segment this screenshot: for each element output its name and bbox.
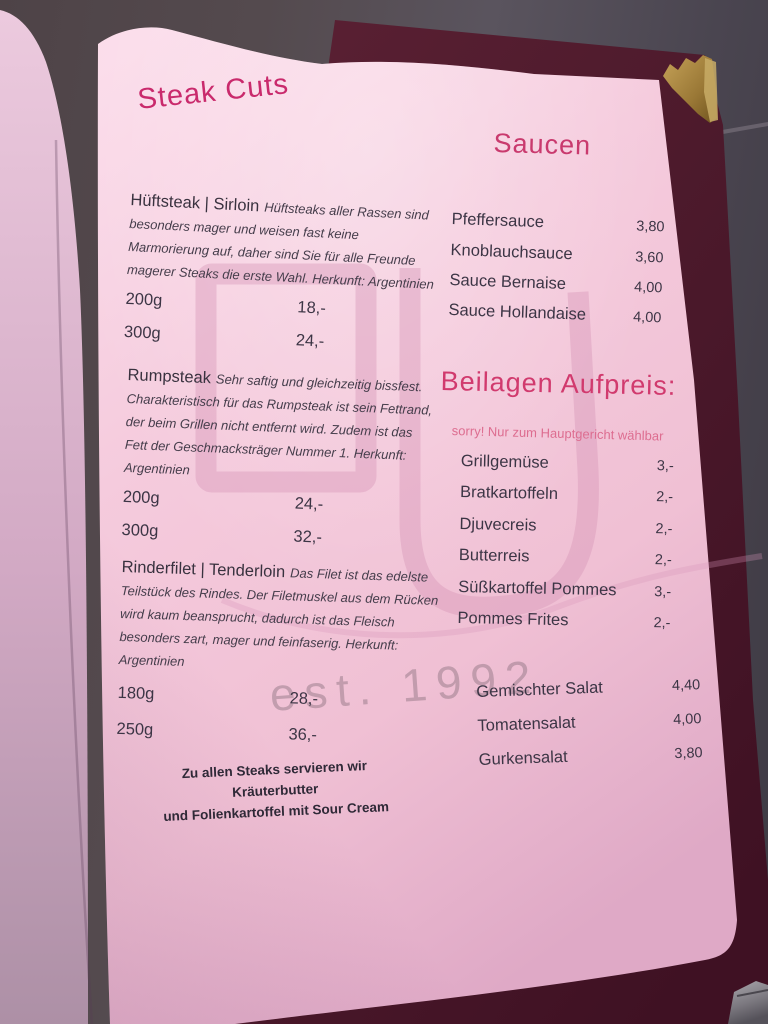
- item-price: 2,-: [656, 487, 673, 506]
- beilagen-title: Beilagen Aufpreis:: [440, 366, 676, 402]
- item-size: 250g: [116, 720, 153, 739]
- item-price: 24,-: [294, 495, 323, 515]
- item-size: 300g: [124, 323, 162, 343]
- item-size: 300g: [121, 521, 158, 540]
- section-name: Hüftsteak | Sirloin: [130, 191, 260, 215]
- item-price: 2,-: [655, 519, 672, 538]
- item-price: 36,-: [288, 725, 317, 745]
- item-name: Pommes Frites: [457, 609, 568, 630]
- item-price: 24,-: [295, 331, 324, 351]
- item-price: 3,-: [657, 456, 674, 475]
- item-name: Sauce Bernaise: [449, 271, 566, 294]
- item-price: 4,00: [634, 277, 663, 297]
- item-price: 18,-: [297, 298, 326, 318]
- left-page-stack: [0, 10, 88, 1024]
- item-price: 4,00: [673, 709, 702, 729]
- item-name: Butterreis: [459, 546, 530, 566]
- menu-section-rumpsteak: RumpsteakSehr saftig und gleichzeitig bi…: [121, 364, 440, 566]
- item-name: Süßkartoffel Pommes: [458, 578, 617, 600]
- item-price: 2,-: [653, 613, 670, 632]
- item-name: Bratkartoffeln: [460, 483, 558, 504]
- section-name: Rinderfilet | Tenderloin: [121, 558, 285, 581]
- background-seam: [722, 122, 768, 134]
- item-size: 200g: [123, 488, 160, 507]
- item-name: Tomatensalat: [477, 714, 576, 736]
- item-price: 3,-: [654, 582, 671, 601]
- section-description: Sehr saftig und gleichzeitig bissfest. C…: [124, 371, 433, 477]
- steaks-footnote: Zu allen Steaks servieren wir Kräuterbut…: [138, 753, 412, 828]
- item-price: 3,60: [635, 247, 664, 267]
- item-price: 4,00: [633, 307, 662, 327]
- item-price: 28,-: [289, 689, 318, 709]
- menu-photo: est. 1992 Steak Cuts Hüftsteak | Sirloin…: [0, 0, 768, 1024]
- section-text: Hüftsteak | SirloinHüftsteaks aller Rass…: [127, 189, 441, 296]
- menu-section-sirloin: Hüftsteak | SirloinHüftsteaks aller Rass…: [123, 189, 441, 371]
- item-name: Grillgemüse: [461, 452, 549, 473]
- saucen-title: Saucen: [493, 128, 591, 162]
- section-name: Rumpsteak: [127, 366, 211, 387]
- item-name: Djuvecreis: [459, 515, 536, 536]
- item-price: 3,80: [674, 743, 703, 763]
- section-text: RumpsteakSehr saftig und gleichzeitig bi…: [124, 364, 440, 491]
- section-description: Hüftsteaks aller Rassen sind besonders m…: [127, 200, 434, 292]
- item-size: 180g: [117, 684, 154, 703]
- section-text: Rinderfilet | TenderloinDas Filet ist da…: [118, 556, 451, 681]
- item-price: 32,-: [293, 527, 322, 547]
- item-price: 3,80: [636, 216, 665, 236]
- item-name: Pfeffersauce: [451, 210, 544, 232]
- item-size: 200g: [125, 290, 163, 310]
- item-price: 4,40: [672, 675, 701, 695]
- item-name: Gurkensalat: [478, 748, 568, 770]
- item-price: 2,-: [655, 550, 672, 569]
- menu-section-tenderloin: Rinderfilet | TenderloinDas Filet ist da…: [116, 556, 452, 766]
- section-items: 200g24,- 300g32,-: [121, 488, 435, 566]
